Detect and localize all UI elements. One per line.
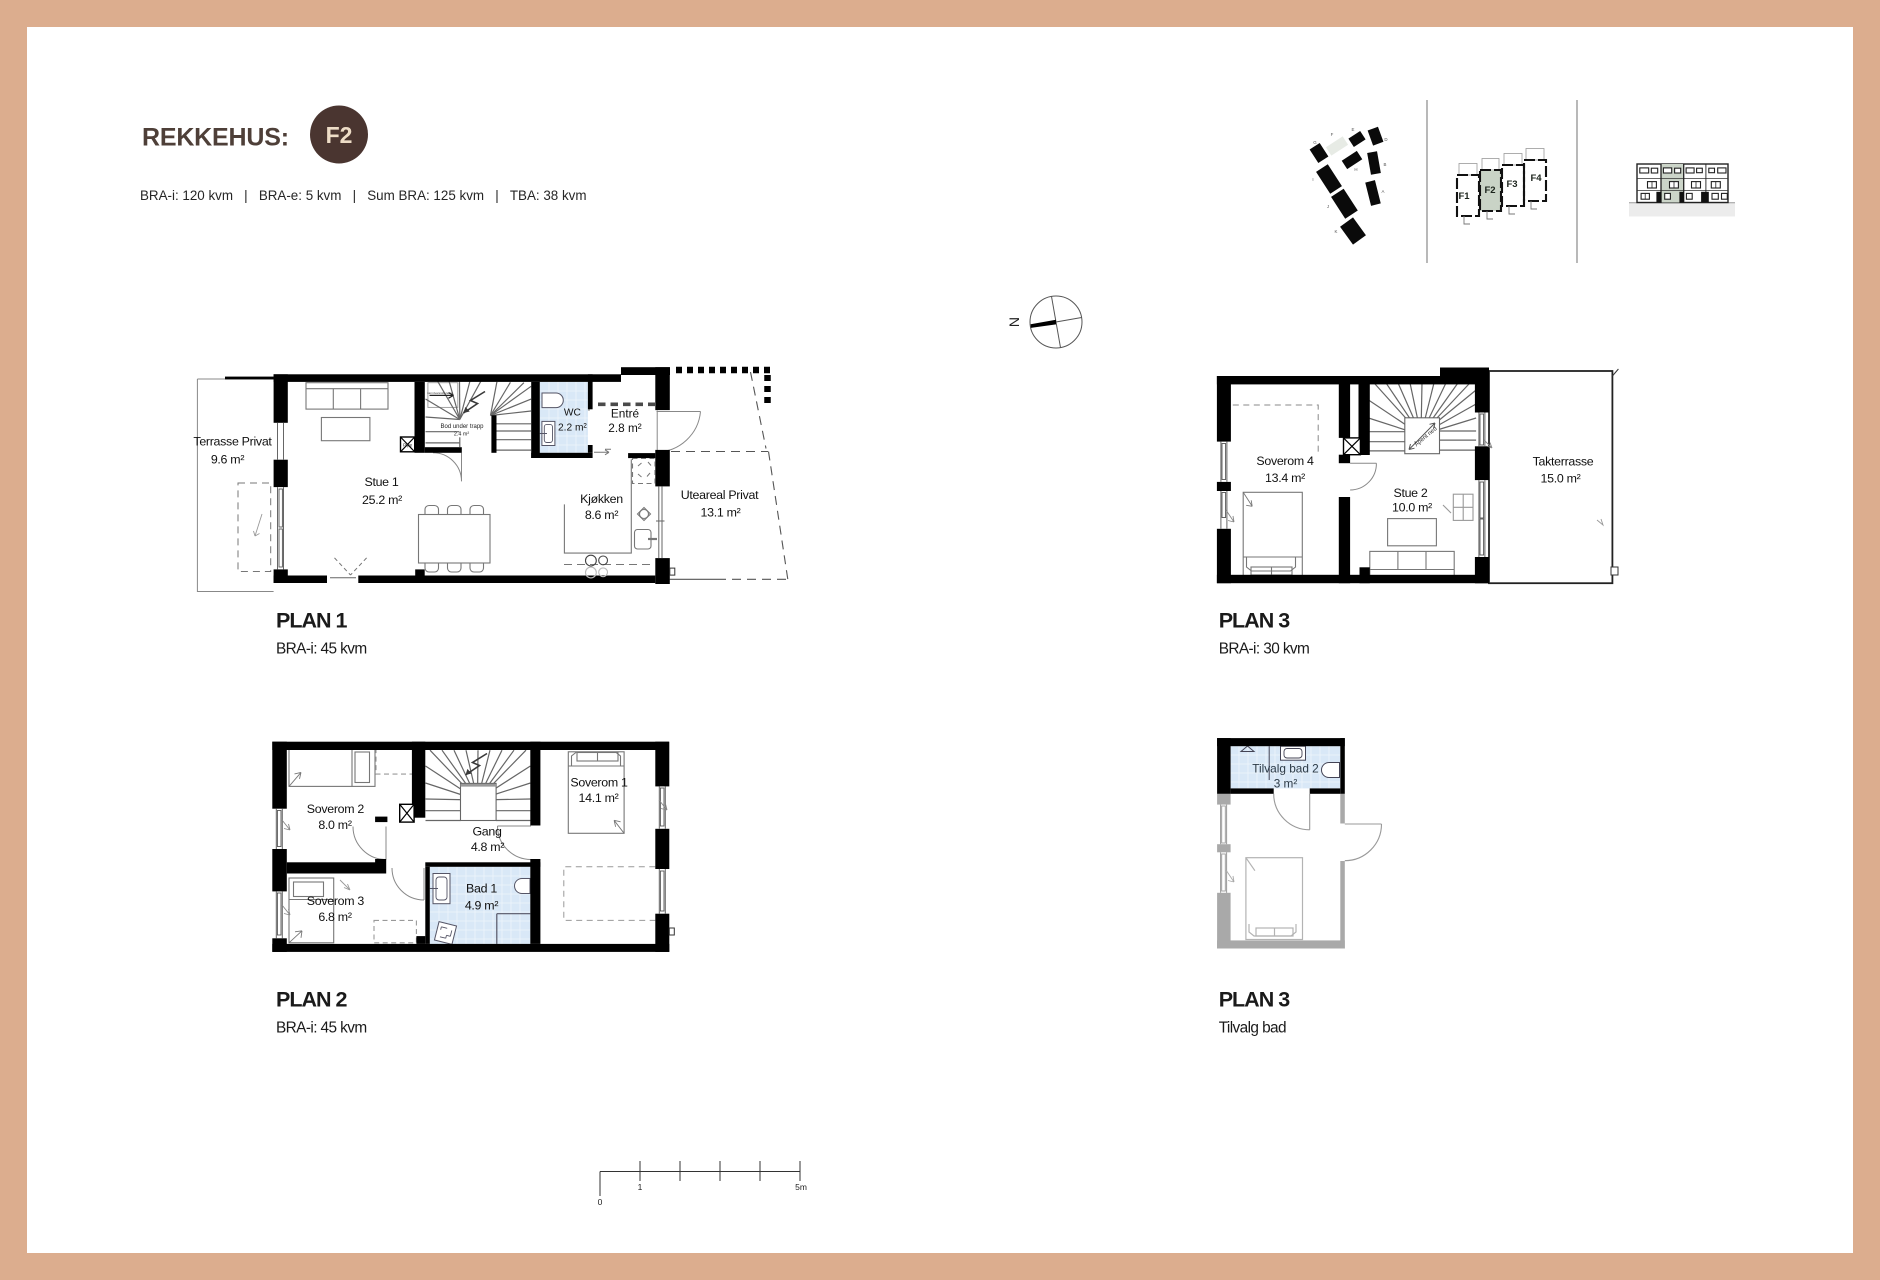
svg-text:F2: F2 [1484, 185, 1495, 196]
svg-text:Takterrasse: Takterrasse [1533, 455, 1594, 469]
svg-text:Kjøkken: Kjøkken [580, 492, 623, 506]
svg-text:6.8 m²: 6.8 m² [318, 910, 351, 924]
svg-text:BRA-i: 45 kvm: BRA-i: 45 kvm [276, 641, 367, 658]
svg-text:Soverom 3: Soverom 3 [307, 894, 365, 908]
svg-text:Tilvalg bad: Tilvalg bad [1219, 1020, 1286, 1037]
svg-text:13.1 m²: 13.1 m² [701, 506, 741, 520]
svg-text:3 m²: 3 m² [1274, 777, 1298, 791]
svg-text:10.0 m²: 10.0 m² [1392, 501, 1432, 515]
svg-text:WC: WC [564, 408, 581, 419]
svg-text:15.0 m²: 15.0 m² [1541, 472, 1581, 486]
svg-text:H: H [1354, 167, 1357, 172]
svg-text:Soverom 4: Soverom 4 [1256, 454, 1314, 468]
svg-text:2.8 m²: 2.8 m² [608, 421, 642, 435]
svg-text:8.0 m²: 8.0 m² [318, 818, 351, 832]
svg-text:1: 1 [638, 1182, 643, 1192]
svg-text:F3: F3 [1506, 179, 1517, 190]
svg-text:Bad 1: Bad 1 [466, 882, 497, 896]
svg-text:Gang: Gang [472, 825, 502, 839]
svg-text:Soverom 2: Soverom 2 [307, 802, 365, 816]
svg-text:Entré: Entré [611, 407, 640, 421]
svg-text:varmtvannsbereder: varmtvannsbereder [427, 391, 453, 395]
svg-text:PLAN 3: PLAN 3 [1219, 988, 1291, 1012]
svg-text:4.8 m²: 4.8 m² [471, 840, 504, 854]
svg-text:F4: F4 [1530, 173, 1542, 184]
svg-text:PLAN 1: PLAN 1 [276, 609, 348, 633]
svg-text:Pipe: Pipe [403, 443, 413, 448]
svg-text:13.4 m²: 13.4 m² [1265, 471, 1305, 485]
svg-text:Terrasse Privat: Terrasse Privat [193, 435, 272, 449]
svg-text:9.6 m²: 9.6 m² [211, 453, 244, 467]
svg-text:Bod under trapp: Bod under trapp [440, 424, 484, 430]
svg-text:14.1 m²: 14.1 m² [579, 791, 619, 805]
svg-text:4.9 m²: 4.9 m² [465, 899, 498, 913]
svg-text:F1: F1 [1458, 191, 1470, 202]
svg-text:2.4 m²: 2.4 m² [454, 432, 469, 438]
svg-text:8.6 m²: 8.6 m² [585, 508, 618, 522]
svg-text:BRA-i: 45 kvm: BRA-i: 45 kvm [276, 1020, 367, 1037]
svg-text:F: F [1331, 132, 1334, 137]
svg-text:F2: F2 [326, 122, 353, 148]
svg-text:G: G [1313, 140, 1317, 145]
svg-text:PLAN 3: PLAN 3 [1219, 609, 1291, 633]
svg-text:Stue 1: Stue 1 [364, 475, 398, 489]
svg-text:A: A [1382, 189, 1385, 194]
svg-text:Stue 2: Stue 2 [1393, 486, 1427, 500]
svg-text:Uteareal Privat: Uteareal Privat [681, 488, 759, 502]
svg-text:Soverom 1: Soverom 1 [570, 776, 628, 790]
svg-text:BRA-i: 30 kvm: BRA-i: 30 kvm [1219, 641, 1310, 658]
svg-text:PLAN 2: PLAN 2 [276, 988, 348, 1012]
svg-text:K: K [1335, 229, 1338, 234]
svg-text:5m: 5m [795, 1182, 807, 1192]
svg-text:0: 0 [598, 1197, 603, 1207]
svg-text:B: B [1384, 162, 1387, 167]
svg-text:E: E [1352, 127, 1355, 132]
svg-text:D: D [1384, 137, 1387, 142]
svg-text:2.2 m²: 2.2 m² [558, 423, 587, 434]
svg-text:N: N [1006, 317, 1022, 327]
svg-text:REKKEHUS:: REKKEHUS: [142, 124, 289, 152]
svg-text:Tilvalg bad 2: Tilvalg bad 2 [1252, 762, 1318, 776]
svg-text:J: J [1327, 204, 1329, 209]
svg-text:BRA-i: 120 kvm | BRA-e: 5: BRA-i: 120 kvm | BRA-e: 5 kvm | Sum BRA:… [140, 188, 587, 203]
svg-text:I: I [1312, 177, 1313, 182]
svg-text:25.2 m²: 25.2 m² [362, 493, 402, 507]
